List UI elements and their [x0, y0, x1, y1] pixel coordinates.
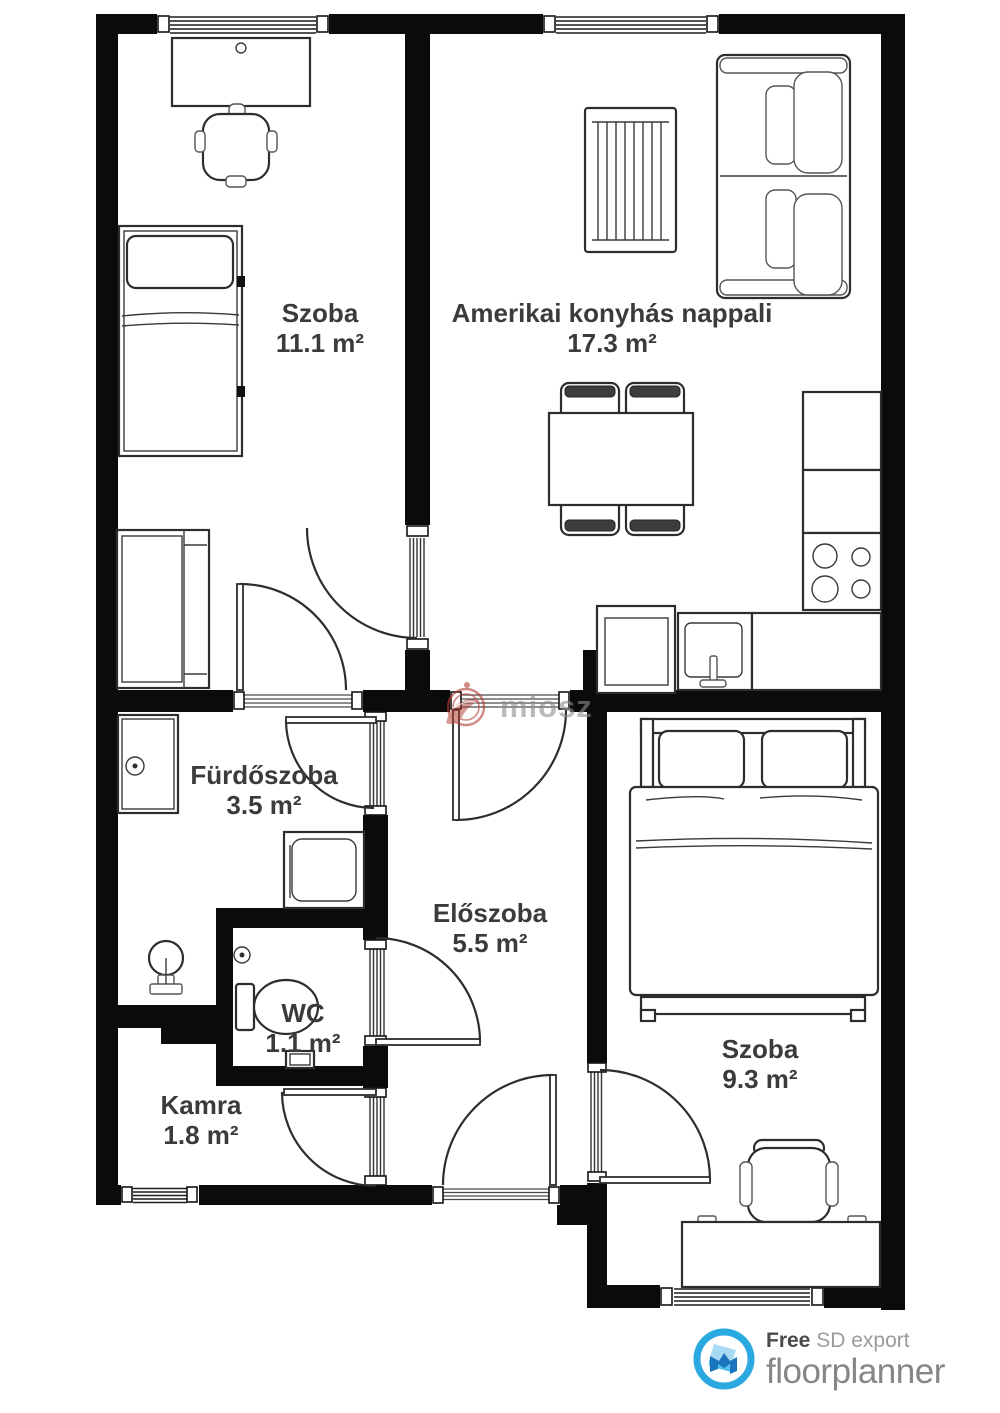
room-szoba-1-furniture: [117, 38, 310, 688]
room-name: Szoba: [722, 1034, 799, 1064]
door-entrance: [432, 1075, 560, 1205]
desk: [172, 38, 310, 106]
door-szoba-2: [587, 1063, 710, 1183]
stove: [803, 533, 881, 610]
wardrobe: [117, 530, 209, 688]
watermark-logo-icon: [438, 678, 494, 736]
room-name: Kamra: [161, 1090, 242, 1120]
room-area: 9.3 m²: [722, 1064, 799, 1094]
room-label-nappali: Amerikai konyhás nappali 17.3 m²: [452, 298, 773, 358]
floorplanner-logo-icon: [692, 1327, 756, 1391]
kitchen-cabinet: [597, 606, 675, 693]
room-name: Szoba: [276, 298, 364, 328]
window-kamra: [121, 1185, 199, 1205]
room-label-kamra: Kamra 1.8 m²: [161, 1090, 242, 1150]
footer-brand: Free SD export floorplanner: [692, 1327, 945, 1391]
door-divider-glazed: [307, 525, 430, 650]
room-label-szoba-2: Szoba 9.3 m²: [722, 1034, 799, 1094]
window-bedroom: [660, 1285, 824, 1308]
room-name: Előszoba: [433, 898, 547, 928]
kitchen-counter: [752, 613, 881, 690]
room-name: Fürdőszoba: [190, 760, 337, 790]
room-szoba-2-furniture: [630, 719, 880, 1287]
door-szoba-1: [233, 584, 363, 712]
room-nappali-furniture: [549, 55, 881, 693]
footer-brand-name: floorplanner: [766, 1354, 945, 1389]
room-area: 17.3 m²: [452, 328, 773, 358]
office-chair: [195, 104, 277, 187]
shower: [284, 832, 364, 908]
desk-chair: [740, 1140, 838, 1222]
single-bed: [119, 226, 245, 456]
desk-2: [682, 1216, 880, 1287]
footer-free-label: Free: [766, 1329, 810, 1352]
room-name: Amerikai konyhás nappali: [452, 298, 773, 328]
room-label-szoba-1: Szoba 11.1 m²: [276, 298, 364, 358]
room-label-wc: WC 1.1 m²: [265, 998, 340, 1058]
room-area: 11.1 m²: [276, 328, 364, 358]
double-bed: [630, 719, 878, 1021]
footer-tagline: SD export: [816, 1329, 909, 1352]
window-top-left: [157, 14, 329, 34]
room-label-furdoszoba: Fürdőszoba 3.5 m²: [190, 760, 337, 820]
watermark-text: miosz: [500, 689, 593, 725]
washing-machine: [118, 715, 178, 813]
room-label-eloszoba: Előszoba 5.5 m²: [433, 898, 547, 958]
room-area: 5.5 m²: [433, 928, 547, 958]
room-area: 3.5 m²: [190, 790, 337, 820]
room-area: 1.1 m²: [265, 1028, 340, 1058]
watermark: miosz: [438, 678, 593, 736]
dining-set: [549, 383, 693, 535]
pedestal-sink: [149, 941, 183, 994]
kitchen-tall-unit: [803, 392, 881, 533]
kitchen-sink: [678, 613, 752, 690]
radiator: [585, 108, 676, 252]
sofa: [717, 55, 850, 298]
room-area: 1.8 m²: [161, 1120, 242, 1150]
floorplan-page: Szoba 11.1 m² Amerikai konyhás nappali 1…: [0, 0, 1000, 1413]
door-stop: [234, 947, 250, 963]
room-name: WC: [265, 998, 340, 1028]
door-kamra: [282, 1088, 388, 1186]
window-top-right: [543, 14, 719, 34]
